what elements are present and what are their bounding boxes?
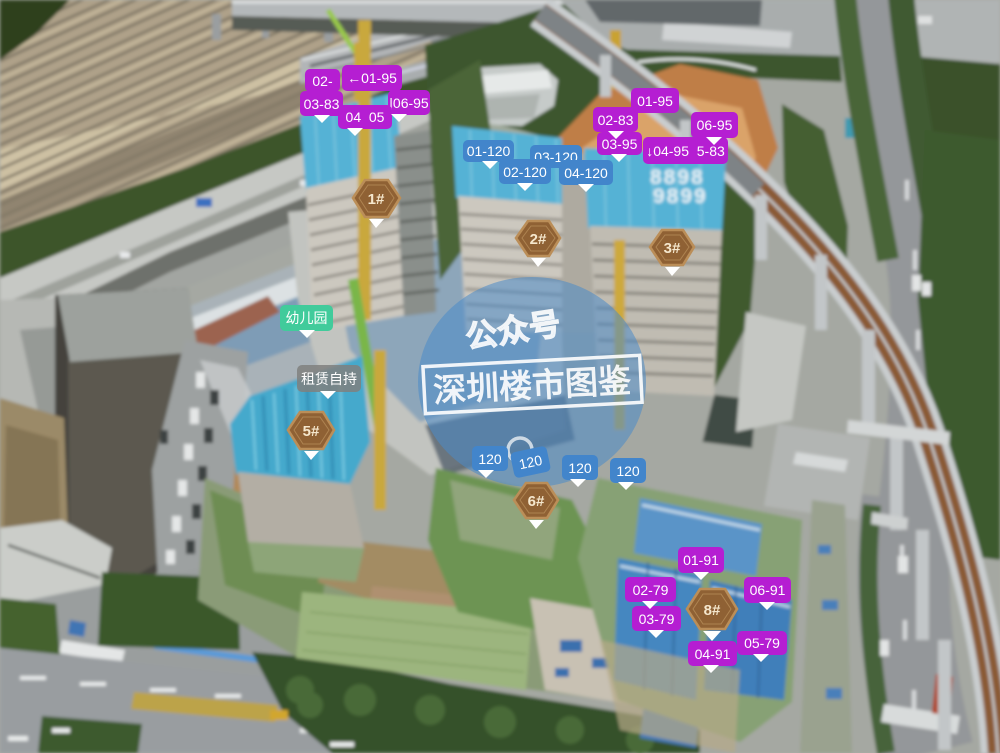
svg-text:9899: 9899 — [653, 185, 708, 208]
